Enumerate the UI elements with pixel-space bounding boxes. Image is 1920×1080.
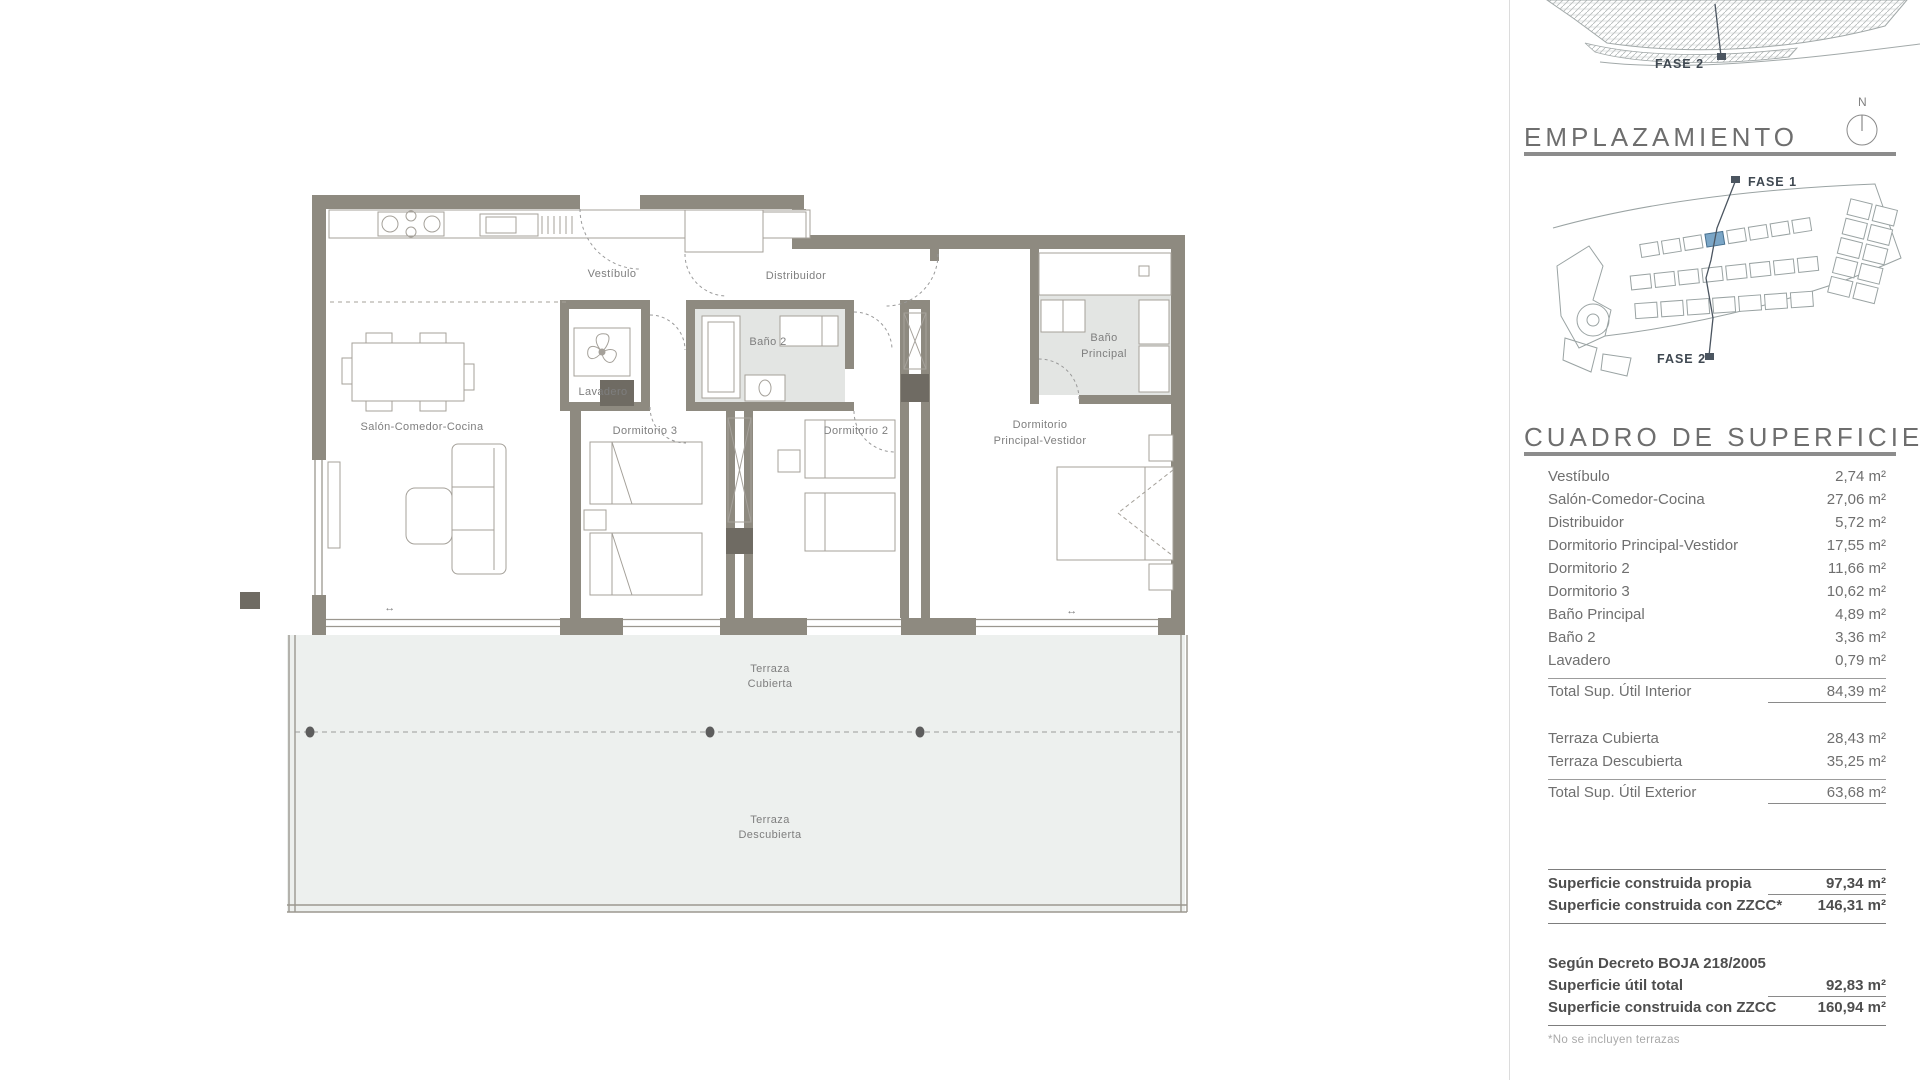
phase-marker [1717, 53, 1726, 60]
table-divider [1548, 869, 1886, 870]
nightstand [778, 450, 800, 472]
building-mass [1547, 0, 1907, 50]
roundabout [1577, 304, 1609, 336]
room-name: Baño 2 [1548, 629, 1596, 646]
total-value: 63,68 m² [1768, 784, 1886, 804]
room-area: 2,74 m² [1835, 468, 1886, 485]
built-area-row: Superficie construida con ZZCC* 146,31 m… [1548, 897, 1886, 919]
compass-n-label: N [1858, 95, 1867, 109]
hall-closet [685, 210, 763, 252]
table-divider [1548, 1025, 1886, 1026]
unit-row [1635, 291, 1814, 318]
built-area-label: Superficie construida propia [1548, 875, 1751, 892]
room-name: Lavadero [1548, 652, 1611, 669]
room-area: 35,25 m² [1827, 753, 1886, 770]
room-label-terraza-cubierta-1: Terraza [750, 663, 790, 675]
fase2-label: FASE 2 [1657, 352, 1706, 366]
terrace-floor [287, 635, 1185, 912]
main-bath-wc [1139, 346, 1169, 392]
table-row: Dormitorio 2 11,66 m² [1548, 560, 1886, 583]
site-plan: FASE 1 FASE 2 [1545, 168, 1917, 383]
toilet [745, 375, 785, 401]
unit-block [1828, 199, 1898, 304]
unit-row [1630, 256, 1818, 290]
exterior-total-row: Total Sup. Útil Exterior 63,68 m² [1548, 784, 1886, 807]
emplazamiento-heading: EMPLAZAMIENTO [1524, 122, 1896, 153]
room-area: 27,06 m² [1827, 491, 1886, 508]
table-row: Dormitorio 3 10,62 m² [1548, 583, 1886, 606]
room-name: Baño Principal [1548, 606, 1645, 623]
room-label-terraza-descubierta-2: Descubierta [738, 829, 802, 841]
surface-table: Vestíbulo 2,74 m² Salón-Comedor-Cocina 2… [1548, 468, 1886, 1046]
unit-row [1640, 218, 1812, 258]
slide-arrow-icon: ↔ [1066, 605, 1077, 617]
room-label-terraza-cubierta-2: Cubierta [748, 678, 793, 690]
room-label-vestibulo: Vestíbulo [588, 268, 637, 280]
room-name: Terraza Cubierta [1548, 730, 1659, 747]
cuadro-heading: CUADRO DE SUPERFICIES [1524, 422, 1896, 453]
bedroom3-beds [584, 442, 702, 595]
room-area: 3,36 m² [1835, 629, 1886, 646]
main-bedroom-furniture [1057, 435, 1173, 590]
room-area: 11,66 m² [1828, 560, 1886, 577]
bath2-sink [780, 316, 838, 346]
table-row: Terraza Descubierta 35,25 m² [1548, 753, 1886, 776]
decreto-value: 92,83 m² [1768, 977, 1886, 997]
room-name: Vestíbulo [1548, 468, 1610, 485]
party-wall-stub [240, 592, 260, 609]
decreto-label: Superficie útil total [1548, 977, 1683, 994]
room-area: 10,62 m² [1827, 583, 1886, 600]
built-area-value: 97,34 m² [1768, 875, 1886, 895]
spacer [1548, 706, 1886, 730]
total-value: 84,39 m² [1768, 683, 1886, 703]
room-name: Salón-Comedor-Cocina [1548, 491, 1705, 508]
room-area: 4,89 m² [1835, 606, 1886, 623]
fase2-marker [1705, 353, 1714, 360]
room-name: Terraza Descubierta [1548, 753, 1682, 770]
coffee-table [406, 488, 452, 544]
cuadro-underline [1524, 452, 1896, 456]
sidebar-divider [1509, 0, 1510, 1080]
table-row: Salón-Comedor-Cocina 27,06 m² [1548, 491, 1886, 514]
table-divider [1548, 923, 1886, 924]
column-dot [706, 727, 715, 738]
total-label: Total Sup. Útil Exterior [1548, 784, 1696, 801]
double-bed [1057, 467, 1173, 560]
room-label-bano2: Baño 2 [749, 336, 786, 348]
wardrobe [1039, 253, 1171, 295]
decreto-row: Superficie construida con ZZCC 160,94 m² [1548, 999, 1886, 1021]
table-row: Baño Principal 4,89 m² [1548, 606, 1886, 629]
room-area: 28,43 m² [1827, 730, 1886, 747]
decreto-label: Superficie construida con ZZCC [1548, 999, 1776, 1016]
laundry-fan-icon [574, 328, 630, 376]
site-structure [1601, 354, 1631, 376]
site-structure [1563, 338, 1597, 372]
table-row: Dormitorio Principal-Vestidor 17,55 m² [1548, 537, 1886, 560]
terrace [240, 592, 1187, 912]
room-label-salon: Salón-Comedor-Cocina [361, 421, 484, 433]
nightstand [1149, 435, 1173, 461]
room-label-lavadero: Lavadero [578, 386, 627, 398]
roundabout-center [1587, 314, 1599, 326]
table-divider [1548, 678, 1886, 679]
column-dot [916, 727, 925, 738]
spacer [1548, 929, 1886, 955]
top-site-map: FASE 2 [1545, 0, 1920, 80]
fase1-marker [1731, 176, 1740, 183]
interior-total-row: Total Sup. Útil Interior 84,39 m² [1548, 683, 1886, 706]
column-dot [306, 727, 315, 738]
room-label-banop-1: Baño [1090, 332, 1117, 344]
room-label-terraza-descubierta-1: Terraza [750, 814, 790, 826]
table-row: Baño 2 3,36 m² [1548, 629, 1886, 652]
built-area-row: Superficie construida propia 97,34 m² [1548, 875, 1886, 897]
room-name: Distribuidor [1548, 514, 1624, 531]
sofa [452, 444, 506, 574]
footnote: *No se incluyen terrazas [1548, 1034, 1886, 1046]
cooktop [378, 212, 444, 236]
top-map-fase2-label: FASE 2 [1655, 57, 1704, 71]
room-name: Dormitorio 2 [1548, 560, 1630, 577]
slide-arrow-icon: ↔ [384, 602, 395, 614]
room-area: 17,55 m² [1827, 537, 1886, 554]
table-row: Lavadero 0,79 m² [1548, 652, 1886, 675]
room-name: Dormitorio Principal-Vestidor [1548, 537, 1738, 554]
room-label-dormp-2: Principal-Vestidor [994, 435, 1087, 447]
emplazamiento-underline [1524, 152, 1896, 156]
built-area-label: Superficie construida con ZZCC* [1548, 897, 1782, 914]
room-label-dorm2: Dormitorio 2 [824, 425, 889, 437]
room-name: Dormitorio 3 [1548, 583, 1630, 600]
dining-table [342, 333, 474, 411]
room-label-banop-2: Principal [1081, 348, 1127, 360]
total-label: Total Sup. Útil Interior [1548, 683, 1691, 700]
room-label-distribuidor: Distribuidor [766, 270, 826, 282]
room-label-dorm3: Dormitorio 3 [613, 425, 678, 437]
table-divider [1548, 779, 1886, 780]
shower [1139, 300, 1169, 344]
room-area: 5,72 m² [1835, 514, 1886, 531]
room-label-dormp-1: Dormitorio [1013, 419, 1068, 431]
decreto-heading-row: Según Decreto BOJA 218/2005 [1548, 955, 1886, 977]
table-row: Terraza Cubierta 28,43 m² [1548, 730, 1886, 753]
spacer [1548, 807, 1886, 865]
nightstand [1149, 564, 1173, 590]
built-area-value: 146,31 m² [1818, 897, 1886, 914]
room-area: 0,79 m² [1835, 652, 1886, 669]
fase1-label: FASE 1 [1748, 175, 1797, 189]
bedroom2-beds [778, 420, 895, 551]
table-row: Distribuidor 5,72 m² [1548, 514, 1886, 537]
table-row: Vestíbulo 2,74 m² [1548, 468, 1886, 491]
decreto-heading: Según Decreto BOJA 218/2005 [1548, 955, 1766, 972]
decreto-row: Superficie útil total 92,83 m² [1548, 977, 1886, 999]
nightstand [584, 510, 606, 530]
sideboard [328, 462, 340, 548]
decreto-value: 160,94 m² [1818, 999, 1886, 1016]
floor-plan: Vestíbulo Distribuidor Baño 2 Lavadero S… [240, 150, 1200, 930]
